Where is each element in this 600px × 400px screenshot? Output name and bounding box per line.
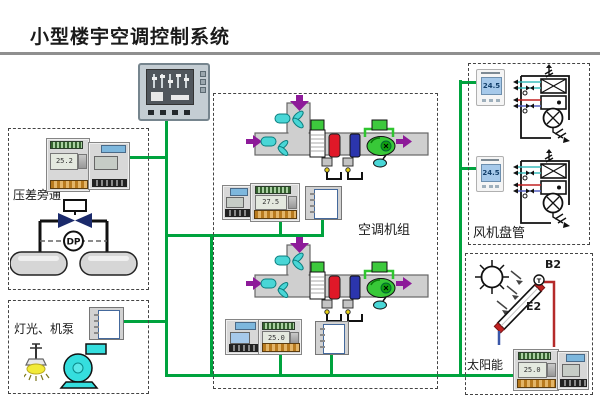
- controller-module-ahu-lower: 25.0: [258, 319, 302, 355]
- lighting-pump-label: 灯光、机泵: [14, 320, 74, 337]
- hmi-screen: [146, 69, 194, 105]
- hmi-touch-panel: [138, 63, 210, 121]
- solar-b2-label: B2: [545, 258, 561, 271]
- thermostat-1: 24.5: [476, 69, 505, 106]
- ahu-duct-graphic-upper: [245, 93, 445, 183]
- lamp-icon: [24, 344, 49, 381]
- fan-actuator: [372, 120, 387, 130]
- screen-device-ahu-lower: [315, 321, 349, 355]
- solar-pipe-hot: [544, 282, 554, 347]
- temp-sensor-label: T: [537, 277, 542, 285]
- heating-coil: [329, 134, 340, 157]
- thermostat-display: 24.5: [481, 77, 502, 95]
- hmi-function-key: [148, 110, 154, 115]
- dp-sensor-label: DP: [66, 238, 80, 248]
- thermostat-2: 24.5: [476, 156, 504, 192]
- lighting-screen-device: [89, 307, 124, 340]
- hmi-function-key: [172, 110, 178, 115]
- cooling-coil: [350, 134, 360, 157]
- controller-lcd: 25.2: [50, 153, 78, 170]
- solar-e2-label: E2: [526, 300, 541, 313]
- diagram-canvas: 小型楼宇空调控制系统 压差旁通 25.2: [0, 0, 600, 400]
- thermostat-display: 24.5: [481, 164, 501, 182]
- filter-actuator: [311, 120, 324, 130]
- io-module-ahu-lower: [225, 319, 260, 355]
- controller-module-ahu-upper: 27.5: [250, 183, 300, 222]
- controller-module-bypass: 25.2: [46, 138, 90, 192]
- controller-module-solar: 25.0: [513, 349, 559, 391]
- pump-icon: [61, 344, 106, 388]
- fan-coil-schematic-1: [513, 64, 575, 144]
- lamp-pump-graphic: [24, 342, 108, 390]
- controller-lcd: 25.0: [518, 362, 547, 378]
- ahu-duct-graphic-lower: [245, 235, 445, 325]
- fan-coil-schematic-2: [513, 149, 575, 229]
- bypass-valve-piping-graphic: DP: [10, 195, 140, 280]
- io-module-bypass: [88, 142, 130, 190]
- controller-lcd: 27.5: [255, 195, 287, 210]
- io-module-ahu-upper: [222, 185, 252, 220]
- solar-label: 太阳能: [467, 356, 503, 373]
- network-line-right-riser: [459, 80, 462, 377]
- sun-icon: [475, 260, 509, 294]
- duct-sensor: [374, 159, 387, 167]
- io-module-solar: [557, 351, 589, 390]
- hmi-function-key: [160, 110, 166, 115]
- hmi-function-key: [184, 110, 190, 115]
- coil-valves: [322, 158, 362, 179]
- page-title: 小型楼宇空调控制系统: [30, 22, 230, 54]
- title-divider: [0, 52, 600, 55]
- screen-device-ahu-upper: [305, 186, 342, 220]
